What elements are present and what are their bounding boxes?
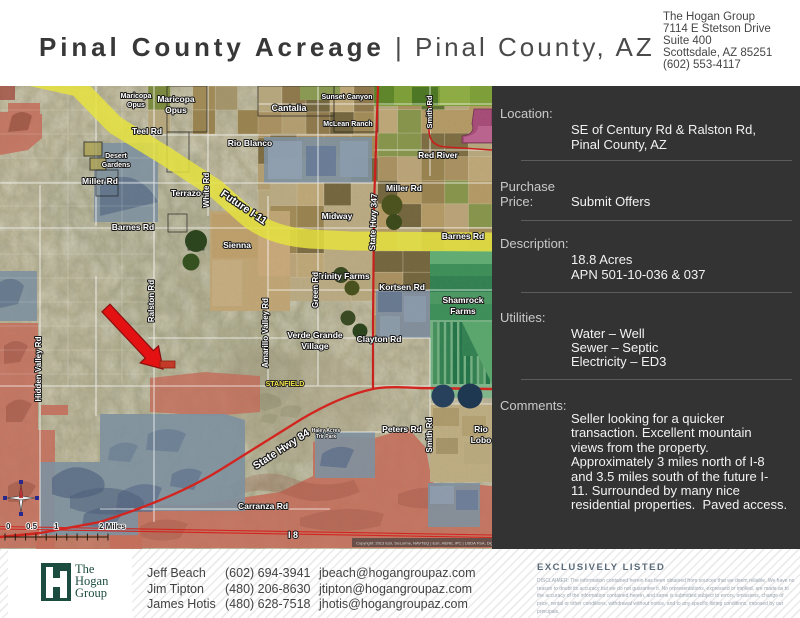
svg-text:2 Miles: 2 Miles bbox=[99, 522, 126, 531]
svg-text:Maricopa: Maricopa bbox=[121, 93, 152, 100]
svg-text:Sienna: Sienna bbox=[223, 240, 251, 250]
svg-text:State Hwy 347: State Hwy 347 bbox=[367, 193, 379, 251]
svg-text:White Rd: White Rd bbox=[202, 173, 211, 208]
svg-text:Smith Rd: Smith Rd bbox=[425, 95, 434, 128]
svg-text:Red River: Red River bbox=[418, 150, 458, 160]
svg-text:Maricopa: Maricopa bbox=[157, 94, 195, 104]
svg-text:McLean Ranch: McLean Ranch bbox=[323, 121, 372, 128]
svg-text:Verde Grande: Verde Grande bbox=[287, 330, 343, 340]
svg-text:Trlr Park: Trlr Park bbox=[316, 434, 337, 440]
svg-text:0.5: 0.5 bbox=[26, 522, 38, 531]
svg-text:Copyright: 2013 Esri, DeLorme,: Copyright: 2013 Esri, DeLorme, NAVTEQ | … bbox=[356, 541, 492, 546]
svg-text:0: 0 bbox=[6, 522, 11, 531]
svg-text:1: 1 bbox=[54, 522, 59, 531]
svg-text:Hidden Valley Rd: Hidden Valley Rd bbox=[34, 336, 43, 401]
svg-text:Barnes Rd: Barnes Rd bbox=[112, 222, 155, 232]
svg-text:Village: Village bbox=[301, 341, 329, 351]
svg-text:Opus: Opus bbox=[127, 102, 145, 109]
svg-text:Ralston Rd: Ralston Rd bbox=[147, 280, 156, 322]
svg-text:Clayton Rd: Clayton Rd bbox=[357, 334, 402, 344]
svg-text:Lobo: Lobo bbox=[471, 435, 492, 445]
svg-text:I 8: I 8 bbox=[288, 530, 298, 540]
svg-text:Farms: Farms bbox=[450, 306, 476, 316]
svg-text:Midway: Midway bbox=[322, 211, 353, 221]
svg-text:Opus: Opus bbox=[165, 105, 187, 115]
svg-text:Green Rd: Green Rd bbox=[311, 272, 320, 308]
svg-text:Peters Rd: Peters Rd bbox=[382, 424, 422, 434]
svg-text:Gardens: Gardens bbox=[102, 162, 131, 169]
svg-text:Teel Rd: Teel Rd bbox=[132, 126, 162, 136]
svg-text:Rio Blanco: Rio Blanco bbox=[228, 138, 272, 148]
svg-text:Cantalia: Cantalia bbox=[271, 103, 307, 113]
svg-text:Miller Rd: Miller Rd bbox=[82, 176, 118, 186]
svg-text:Desert: Desert bbox=[105, 153, 127, 160]
svg-text:Barnes Rd: Barnes Rd bbox=[442, 231, 485, 241]
svg-text:Smith Rd: Smith Rd bbox=[425, 417, 434, 452]
svg-text:Miller Rd: Miller Rd bbox=[386, 183, 422, 193]
svg-text:Terrazo: Terrazo bbox=[171, 188, 201, 198]
svg-text:Shamrock: Shamrock bbox=[442, 295, 483, 305]
svg-text:Kortsen Rd: Kortsen Rd bbox=[379, 282, 425, 292]
svg-text:Carranza Rd: Carranza Rd bbox=[238, 501, 288, 511]
svg-text:Trinity Farms: Trinity Farms bbox=[316, 271, 370, 281]
svg-text:Rio: Rio bbox=[474, 424, 488, 434]
svg-text:Sunset Canyon: Sunset Canyon bbox=[322, 94, 373, 101]
svg-text:Amarillo Valley Rd: Amarillo Valley Rd bbox=[261, 298, 270, 368]
svg-text:STANFIELD: STANFIELD bbox=[266, 381, 305, 388]
